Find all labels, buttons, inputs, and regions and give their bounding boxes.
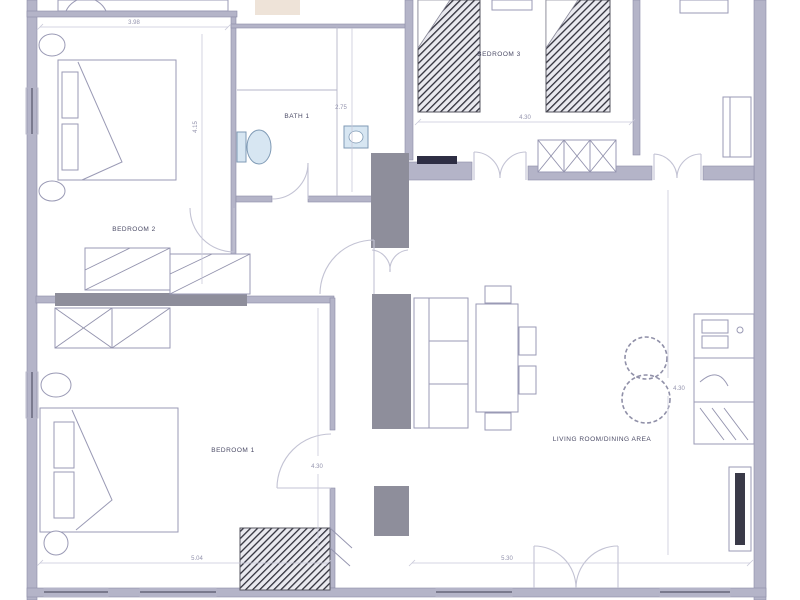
bedroom2-furniture <box>39 0 250 294</box>
wall-core-central-upper <box>371 153 409 248</box>
living-furniture <box>414 286 754 551</box>
bedroom2-label: BEDROOM 2 <box>112 226 156 233</box>
bedroom3-label: BEDROOM 3 <box>477 51 521 58</box>
scan-artifact <box>255 0 300 15</box>
dim-living-width: 5.30 <box>501 556 513 562</box>
cabinet-top-right <box>680 0 728 13</box>
bedroom3-furniture <box>418 0 616 172</box>
hall-door-arc <box>320 240 374 294</box>
nightstand-between-beds <box>492 0 532 10</box>
balcony-door-arc-right <box>576 546 618 588</box>
wall-bottom <box>27 588 766 597</box>
plant-icon <box>622 375 670 423</box>
bedroom2-door-arc <box>190 208 234 252</box>
toilet-tank <box>237 132 246 162</box>
hall-doorswing-b <box>390 250 408 272</box>
door2-arc-right <box>677 154 701 178</box>
pillow-3 <box>54 422 74 468</box>
wall-bedroom3-west <box>405 0 413 160</box>
living-label: LIVING ROOM/DINING AREA <box>553 436 652 443</box>
bedroom1-furniture <box>40 308 352 590</box>
plant-icon <box>625 337 667 379</box>
pillow-4 <box>54 472 74 518</box>
dim-bedroom1-depth: 4.30 <box>311 464 323 470</box>
entry-room-furniture <box>680 0 751 157</box>
pillow-2 <box>62 124 78 170</box>
wall-bedroom1-top-right <box>246 296 334 303</box>
dining-table <box>476 304 518 412</box>
wall-living-top-3 <box>703 166 754 180</box>
bath1-label: BATH 1 <box>284 113 309 120</box>
chair-bottom <box>485 413 511 430</box>
balcony-door-arc-left <box>534 546 576 588</box>
chair-right-1 <box>519 327 536 355</box>
wall-bath-top <box>231 24 407 28</box>
chair-top <box>485 286 511 303</box>
wardrobe-top <box>58 0 228 11</box>
floor-plan: BEDROOM 2 BATH 1 BEDROOM 3 BEDROOM 1 LIV… <box>0 0 800 600</box>
wall-bath-bottom-left <box>236 196 272 202</box>
door1-arc-right <box>500 152 526 178</box>
hall-doorswing-a <box>372 250 390 272</box>
chair-right-2 <box>519 366 536 394</box>
pillow-1 <box>62 72 78 118</box>
wall-right <box>754 0 766 600</box>
door1-arc-left <box>474 152 500 178</box>
bath-door-arc <box>272 163 308 199</box>
wall-bedroom3-east <box>633 0 640 155</box>
dresser-hatched <box>240 528 330 590</box>
dim-bedroom2-depth: 4.15 <box>193 121 199 133</box>
wall-top-bedroom2 <box>27 11 237 17</box>
shelf-right-wall <box>723 97 751 157</box>
toilet-icon <box>247 130 271 164</box>
sink-basin <box>349 131 363 143</box>
nightstand-round-4 <box>44 531 68 555</box>
sofa <box>414 298 468 428</box>
wall-bedroom1-east-upper <box>330 298 335 430</box>
bedroom1-door-arc <box>277 434 331 488</box>
wall-bedroom1-east-lower <box>330 488 335 588</box>
nightstand-round-3 <box>41 373 71 397</box>
dim-living-depth: 4.30 <box>673 386 685 392</box>
dim-bath-depth: 2.75 <box>335 105 347 111</box>
nightstand-round-2 <box>39 181 65 201</box>
radiator-core <box>735 473 745 545</box>
dim-bedroom1-width: 5.04 <box>191 556 203 562</box>
wall-core-central-lower <box>374 486 409 536</box>
floor-plan-page: BEDROOM 2 BATH 1 BEDROOM 3 BEDROOM 1 LIV… <box>0 0 800 600</box>
nightstand-round-1 <box>39 34 65 56</box>
threshold-dark-bar <box>417 156 457 164</box>
dim-bedroom3-width: 4.30 <box>519 115 531 121</box>
door2-arc-left <box>654 154 677 178</box>
wall-core-central-mid <box>372 294 411 429</box>
bedroom1-label: BEDROOM 1 <box>211 447 255 454</box>
dim-top-width: 3.98 <box>128 20 140 26</box>
wall-core-bedrooms-divider <box>55 293 247 306</box>
